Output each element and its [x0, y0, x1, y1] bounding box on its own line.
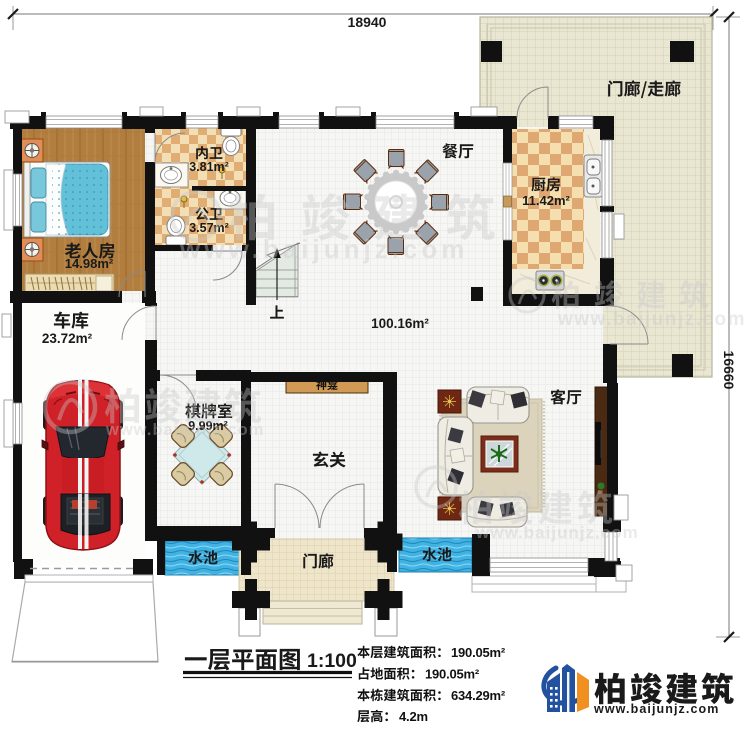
svg-text:www.baijunjz.com: www.baijunjz.com	[557, 309, 746, 330]
svg-text:11.42m²: 11.42m²	[522, 193, 570, 208]
svg-text:634.29m²: 634.29m²	[451, 688, 506, 703]
svg-text:3.81m²: 3.81m²	[189, 160, 229, 174]
svg-text:www.baijunjz.com: www.baijunjz.com	[179, 234, 468, 264]
svg-text:23.72m²: 23.72m²	[42, 331, 93, 346]
svg-text:100.16m²: 100.16m²	[371, 316, 429, 331]
svg-text:18940: 18940	[348, 14, 387, 30]
svg-text:1:100: 1:100	[307, 650, 357, 672]
svg-text:190.05m²: 190.05m²	[425, 667, 480, 682]
svg-text:4.2m: 4.2m	[399, 709, 428, 724]
svg-text:www.baijunjz.com: www.baijunjz.com	[593, 702, 719, 716]
svg-text:www.baijunjz.com: www.baijunjz.com	[105, 421, 264, 439]
svg-text:www.baijunjz.com: www.baijunjz.com	[475, 523, 639, 542]
svg-text:3.57m²: 3.57m²	[189, 221, 229, 235]
svg-text:16660: 16660	[721, 351, 737, 390]
svg-text:14.98m²: 14.98m²	[65, 256, 114, 271]
svg-text:190.05m²: 190.05m²	[451, 645, 506, 660]
